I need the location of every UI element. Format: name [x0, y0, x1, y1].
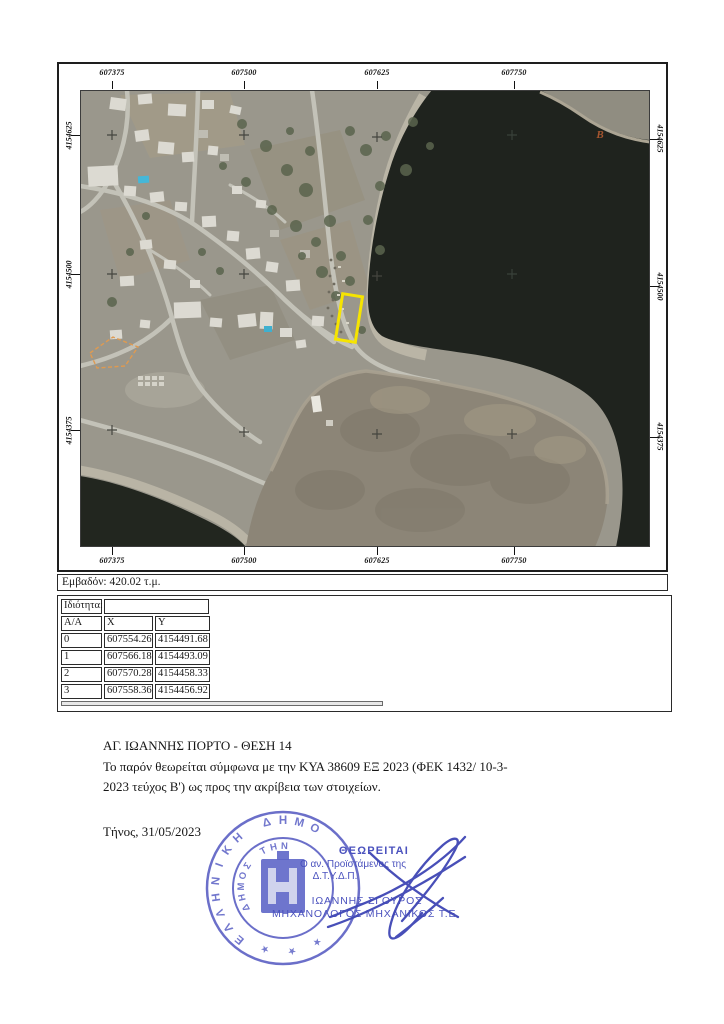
location-title: ΑΓ. ΙΩΑΝΝΗΣ ΠΟΡΤΟ - ΘΕΣΗ 14 — [103, 738, 603, 754]
svg-text:Η: Η — [236, 893, 248, 902]
property-value-cell — [104, 599, 209, 614]
x-label: 607750 — [501, 556, 526, 565]
cell-aa: 2 — [61, 667, 102, 682]
cell-y: 4154458.33 — [155, 667, 210, 682]
document-text: ΑΓ. ΙΩΑΝΝΗΣ ΠΟΡΤΟ - ΘΕΣΗ 14 Το παρόν θεω… — [103, 738, 603, 840]
area-label: Εμβαδόν: 420.02 τ.μ. — [62, 576, 161, 588]
table-row: 2607570.284154458.33 — [61, 667, 671, 682]
cell-aa: 3 — [61, 684, 102, 699]
svg-text:Ε: Ε — [233, 932, 247, 946]
stamp-star: ★ — [287, 944, 297, 956]
svg-text:Ν: Ν — [281, 841, 288, 852]
svg-text:Λ: Λ — [214, 907, 228, 919]
svg-text:Σ: Σ — [242, 860, 255, 871]
svg-text:Τ: Τ — [258, 845, 268, 858]
svg-text:Η: Η — [269, 841, 278, 853]
cell-x: 607554.26 — [104, 633, 153, 648]
x-label: 607625 — [364, 68, 389, 77]
map-frame: Β 607375 607500 607625 607750 607375 607… — [57, 62, 668, 572]
x-label: 607500 — [231, 68, 256, 77]
place-and-date: Τήνος, 31/05/2023 — [103, 824, 603, 840]
scrollbar-track — [61, 701, 383, 706]
stamp-inner-ring — [233, 838, 333, 938]
cell-y: 4154491.68 — [155, 633, 210, 648]
cell-x: 607558.36 — [104, 684, 153, 699]
property-label: Ιδιότητα: — [61, 599, 102, 614]
x-label: 607375 — [99, 556, 124, 565]
cell-y: 4154456.92 — [155, 684, 210, 699]
stamp-star: ★ — [310, 935, 323, 949]
approver-title: ΜΗΧΑΝΟΛΟΓΟΣ ΜΗΧΑΝΙΚΟΣ Τ.Ε. — [272, 908, 460, 920]
svg-text:Η: Η — [210, 892, 223, 902]
col-header-y: Y — [155, 616, 210, 631]
svg-text:Κ: Κ — [220, 843, 235, 857]
paragraph-line: Το παρόν θεωρείται σύμφωνα με την ΚΥΑ 38… — [103, 759, 508, 774]
svg-text:Μ: Μ — [236, 882, 247, 890]
header-row: Α/ΑXY — [61, 616, 671, 631]
certification-paragraph: Το παρόν θεωρείται σύμφωνα με την ΚΥΑ 38… — [103, 757, 603, 796]
x-label: 607750 — [501, 68, 526, 77]
property-row: Ιδιότητα: — [61, 599, 671, 614]
approver-role-line1: Ο αν. Προϊστάμενος της — [300, 858, 406, 870]
cell-aa: 0 — [61, 633, 102, 648]
signature — [328, 837, 465, 938]
approved-label: ΘΕΩΡΕΙΤΑΙ — [339, 845, 409, 857]
table-row: 0607554.264154491.68 — [61, 633, 671, 648]
stamp-emblem — [261, 851, 305, 913]
approver-name: ΙΩΑΝΝΗΣ ΣΓΟΥΡΟΣ — [312, 895, 423, 907]
stamp-ring-inner-text: ΔΗΜΟΣ ΤΗΝ — [236, 841, 288, 913]
approver-role-line2: Δ.Τ.Υ.Δ.Π. — [313, 871, 358, 882]
document-page: Β 607375 607500 607625 607750 607375 607… — [0, 0, 724, 1024]
aerial-photo: Β — [80, 90, 650, 547]
x-label: 607625 — [364, 556, 389, 565]
svg-text:Ο: Ο — [237, 871, 250, 881]
coordinates-table: Ιδιότητα: Α/ΑXY 0607554.264154491.68 160… — [61, 599, 671, 699]
svg-text:Δ: Δ — [240, 902, 253, 913]
col-header-x: X — [104, 616, 153, 631]
cell-y: 4154493.09 — [155, 650, 210, 665]
table-row: 3607558.364154456.92 — [61, 684, 671, 699]
paragraph-line: 2023 τεύχος Β') ως προς την ακρίβεια των… — [103, 779, 381, 794]
stamp-star: ★ — [259, 942, 271, 955]
svg-text:Ι: Ι — [214, 862, 226, 869]
x-label: 607375 — [99, 68, 124, 77]
point-b-label: Β — [595, 129, 603, 141]
col-header-aa: Α/Α — [61, 616, 102, 631]
svg-text:Ν: Ν — [210, 876, 223, 886]
area-box: Εμβαδόν: 420.02 τ.μ. — [57, 574, 668, 591]
x-label: 607500 — [231, 556, 256, 565]
svg-text:Λ: Λ — [221, 920, 235, 934]
cell-aa: 1 — [61, 650, 102, 665]
table-row: 1607566.184154493.09 — [61, 650, 671, 665]
coordinates-panel: Ιδιότητα: Α/ΑXY 0607554.264154491.68 160… — [57, 595, 672, 712]
cell-x: 607570.28 — [104, 667, 153, 682]
cell-x: 607566.18 — [104, 650, 153, 665]
